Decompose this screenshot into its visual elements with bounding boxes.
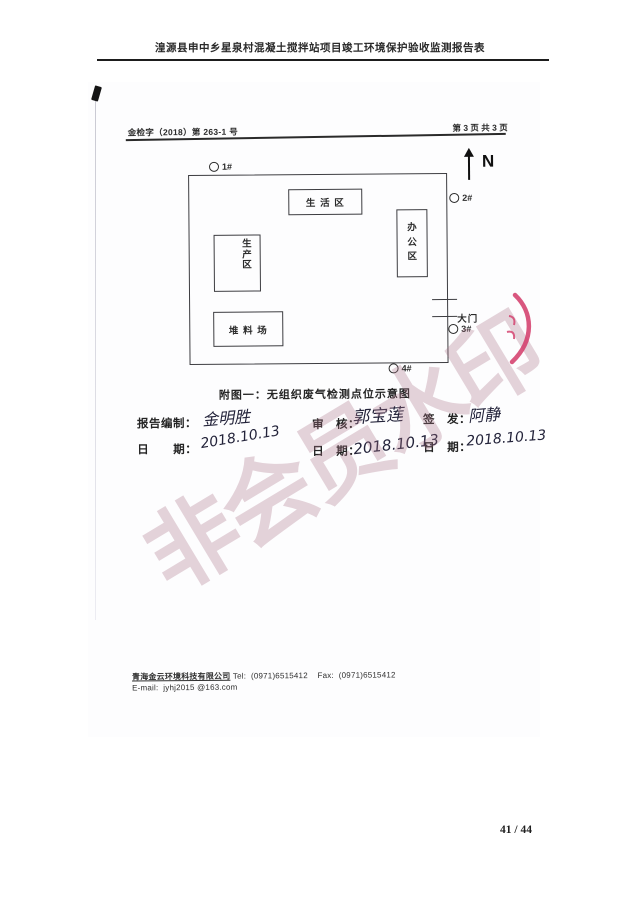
north-arrow-shaft <box>468 156 470 180</box>
office-area-box: 办 公 区 <box>396 209 428 277</box>
monitoring-point-circle <box>449 193 459 203</box>
pdf-page-number: 41 / 44 <box>500 824 570 836</box>
monitoring-point-circle <box>448 324 458 334</box>
reviewed-by-signature: 郭宝莲 <box>351 400 403 428</box>
office-area-label: 办 公 区 <box>407 221 417 265</box>
prepared-by-signature: 金明胜 <box>201 403 251 431</box>
monitoring-point-3: 3# <box>448 324 471 334</box>
living-area-box: 生 活 区 <box>288 189 362 216</box>
figure-caption: 附图一：无组织废气检测点位示意图 <box>90 384 540 404</box>
document-number: 金检字（2018）第 263-1 号 <box>128 126 238 139</box>
fax-number: (0971)6515412 <box>339 670 396 679</box>
email-label: E-mail: <box>132 683 158 692</box>
issued-date-label: 日 期： <box>423 439 471 455</box>
monitoring-point-1: 1# <box>209 162 232 172</box>
stockyard-box: 堆 料 场 <box>213 311 283 347</box>
footer-email-line: E-mail: jyhj2015 @163.com <box>132 683 237 693</box>
monitoring-point-label: 2# <box>462 193 472 203</box>
red-seal-arc <box>498 292 543 366</box>
north-arrow: N <box>458 149 504 183</box>
monitoring-point-circle <box>209 162 219 172</box>
tel-label: Tel: <box>233 672 246 681</box>
monitoring-point-label: 4# <box>402 363 412 373</box>
stockyard-label: 堆 料 场 <box>229 322 268 336</box>
company-name: 青海金云环境科技有限公司 <box>132 672 230 682</box>
gate-label: 大门 <box>457 311 478 325</box>
tel-number: (0971)6515412 <box>251 671 308 680</box>
gate-mark-top <box>432 299 457 300</box>
issued-by-label: 签 发： <box>423 411 471 427</box>
monitoring-point-circle <box>389 363 399 373</box>
living-area-label: 生 活 区 <box>306 195 345 209</box>
monitoring-point-2: 2# <box>449 193 472 203</box>
north-label: N <box>482 152 494 172</box>
gate-mark-bottom <box>432 316 457 317</box>
report-page: 湟源县申中乡星泉村混凝土搅拌站项目竣工环境保护验收监测报告表 金检字（2018）… <box>0 0 640 905</box>
scan-content: 金检字（2018）第 263-1 号 第 3 页 共 3 页 1# N 生 活 … <box>0 0 640 905</box>
fax-label: Fax: <box>318 671 334 680</box>
prepared-date-label: 日 期： <box>137 441 197 457</box>
email-address: jyhj2015 @163.com <box>163 683 237 693</box>
monitoring-point-4: 4# <box>389 363 412 373</box>
production-area-box: 生 产 区 <box>214 234 261 291</box>
production-area-label: 生 产 区 <box>242 240 252 272</box>
prepared-by-label: 报告编制： <box>137 415 197 431</box>
issued-date-value: 2018.10.13 <box>466 427 547 449</box>
monitoring-point-label: 1# <box>222 162 232 172</box>
issued-by-signature: 阿静 <box>467 401 501 427</box>
monitoring-point-label: 3# <box>461 324 471 334</box>
footer-contact-line: 青海金云环境科技有限公司 Tel: (0971)6515412 Fax: (09… <box>132 669 396 682</box>
